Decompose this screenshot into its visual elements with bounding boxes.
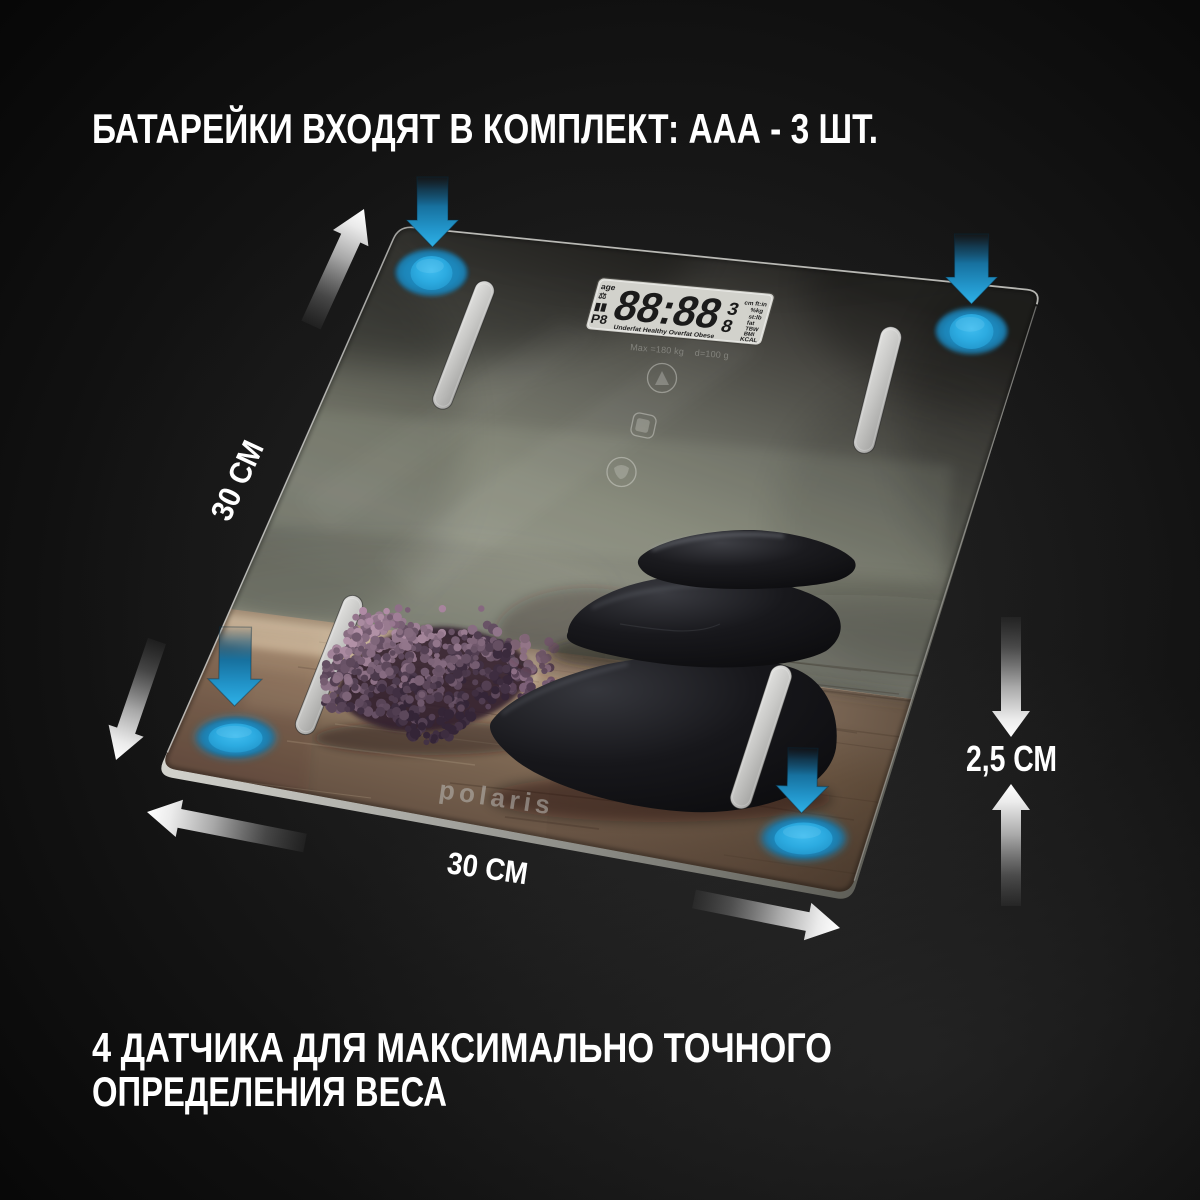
svg-text:БАТАРЕЙКИ ВХОДЯТ В КОМПЛЕКТ: А: БАТАРЕЙКИ ВХОДЯТ В КОМПЛЕКТ: ААА - 3 ШТ. <box>92 105 878 152</box>
svg-text:4 ДАТЧИКА ДЛЯ МАКСИМАЛЬНО ТОЧН: 4 ДАТЧИКА ДЛЯ МАКСИМАЛЬНО ТОЧНОГО <box>92 1024 832 1071</box>
svg-text:ОПРЕДЕЛЕНИЯ ВЕСА: ОПРЕДЕЛЕНИЯ ВЕСА <box>92 1068 447 1115</box>
svg-text:2,5 СМ: 2,5 СМ <box>966 738 1057 779</box>
